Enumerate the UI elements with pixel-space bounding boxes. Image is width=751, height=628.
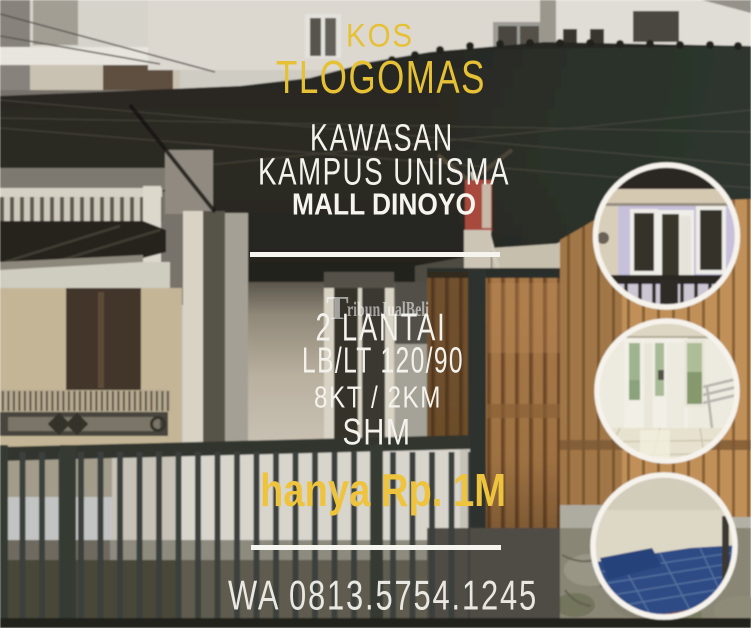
svg-text:KOS: KOS (346, 18, 414, 54)
svg-text:hanya Rp. 1M: hanya Rp. 1M (260, 464, 506, 516)
svg-text:MALL DINOYO: MALL DINOYO (292, 187, 476, 222)
svg-text:WA 0813.5754.1245: WA 0813.5754.1245 (228, 572, 538, 619)
svg-text:LB/LT 120/90: LB/LT 120/90 (302, 340, 464, 381)
svg-text:TLOGOMAS: TLOGOMAS (276, 51, 486, 103)
svg-text:SHM: SHM (343, 412, 412, 453)
svg-text:8KT / 2KM: 8KT / 2KM (314, 380, 442, 415)
